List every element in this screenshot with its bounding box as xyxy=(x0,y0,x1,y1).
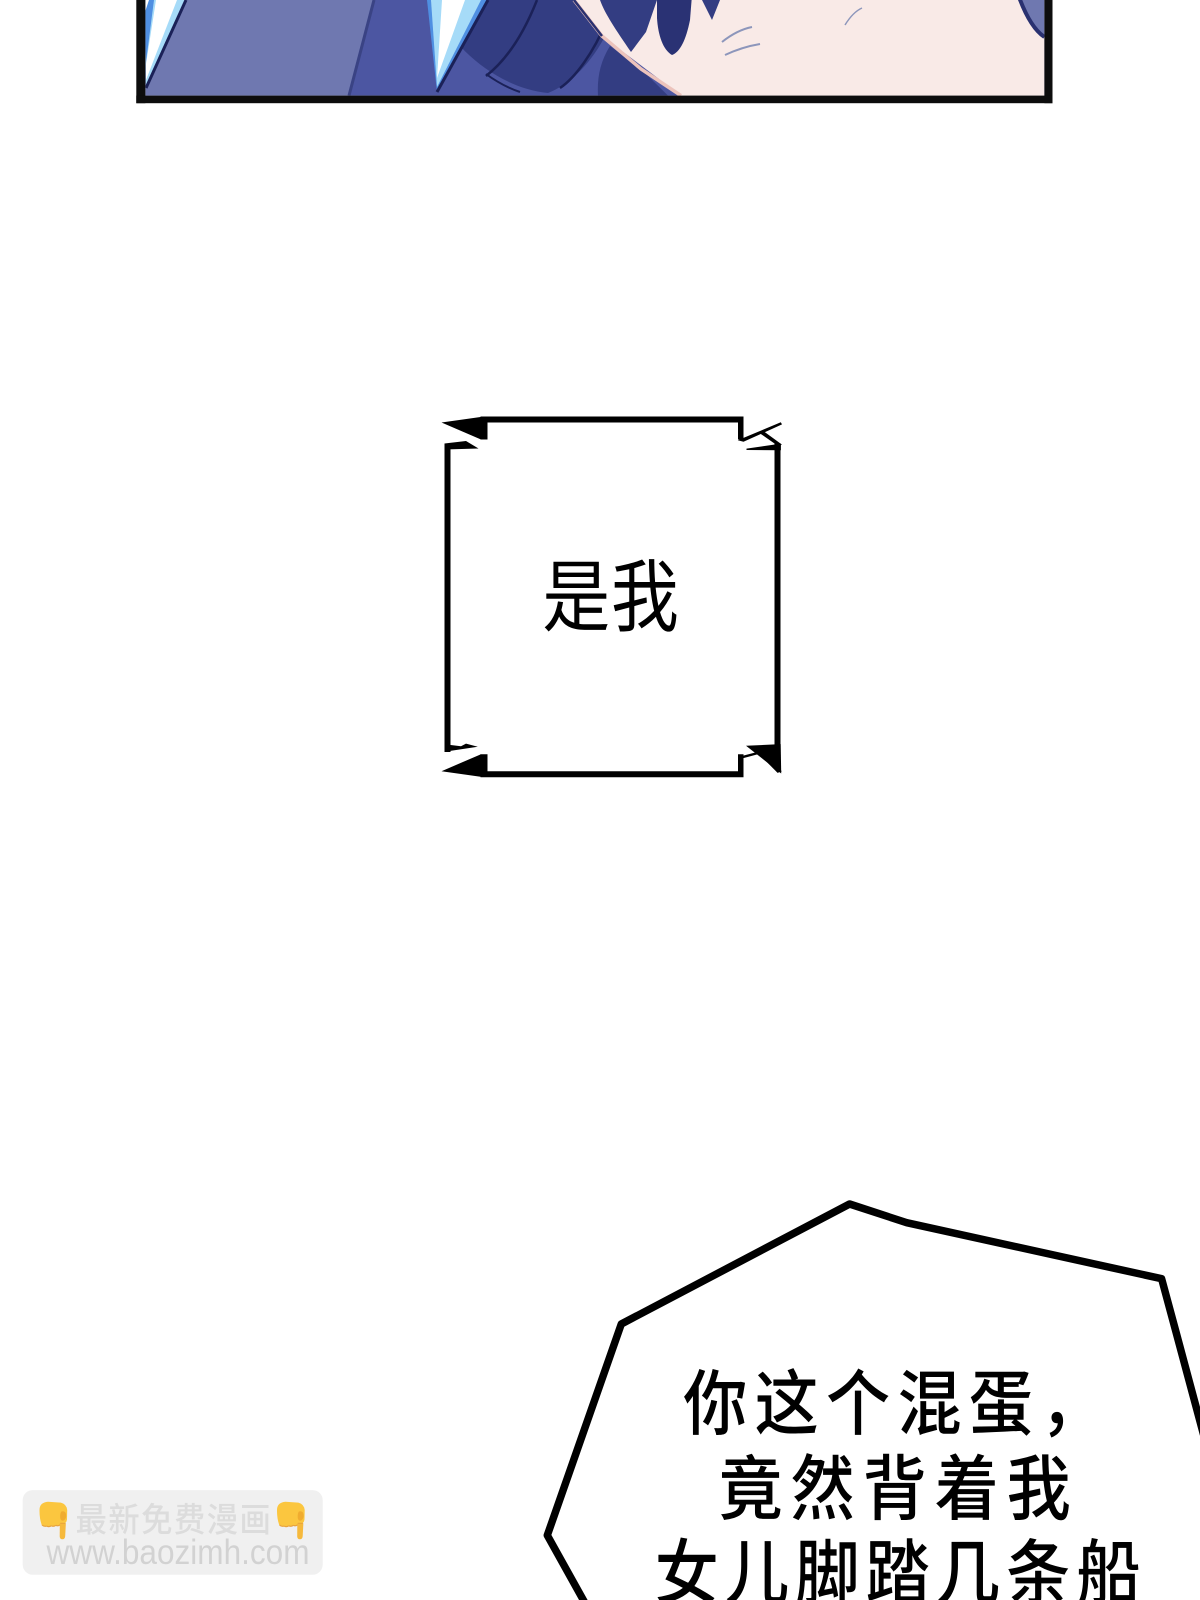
svg-text:www.baozimh.com: www.baozimh.com xyxy=(46,1533,310,1572)
